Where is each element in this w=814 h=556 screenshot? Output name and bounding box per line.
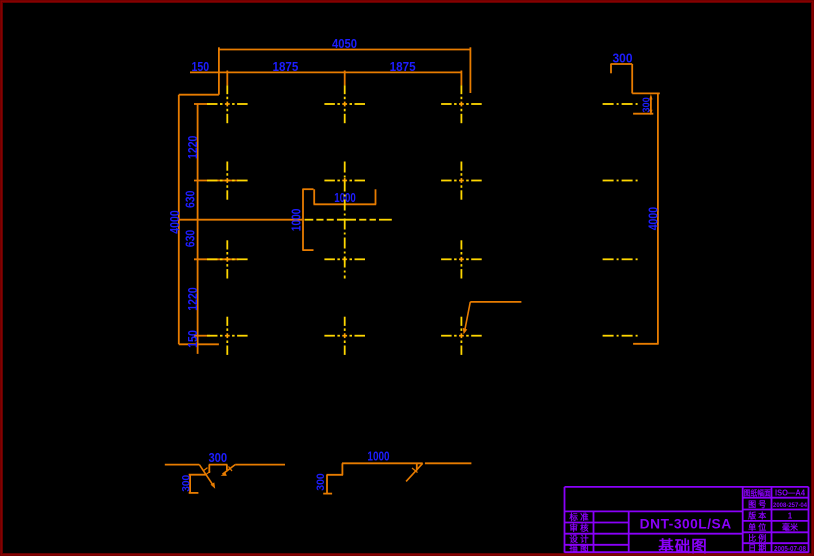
svg-text:630: 630 — [184, 230, 198, 248]
svg-text:1875: 1875 — [273, 60, 299, 74]
svg-text:单 位: 单 位 — [748, 522, 766, 532]
svg-text:1220: 1220 — [186, 136, 200, 159]
svg-text:1220: 1220 — [186, 287, 200, 310]
svg-text:图纸幅面: 图纸幅面 — [744, 487, 771, 497]
svg-text:300: 300 — [315, 473, 327, 491]
svg-text:2008-257-04: 2008-257-04 — [773, 502, 807, 509]
svg-text:毫米: 毫米 — [782, 522, 799, 532]
svg-text:图 号: 图 号 — [748, 500, 766, 509]
svg-text:版 本: 版 本 — [747, 510, 766, 520]
svg-text:DNT-300L/SA: DNT-300L/SA — [640, 516, 732, 531]
svg-text:4000: 4000 — [168, 210, 182, 233]
svg-text:1000: 1000 — [367, 449, 389, 463]
svg-text:描 图: 描 图 — [569, 543, 588, 553]
svg-text:1000: 1000 — [290, 209, 304, 232]
svg-text:150: 150 — [186, 330, 200, 348]
svg-text:基础图: 基础图 — [657, 536, 708, 555]
svg-text:300: 300 — [641, 97, 653, 113]
svg-text:630: 630 — [184, 191, 198, 209]
svg-text:4050: 4050 — [332, 37, 357, 51]
svg-text:1875: 1875 — [390, 60, 416, 74]
svg-text:150: 150 — [191, 60, 209, 74]
svg-text:300: 300 — [180, 475, 192, 492]
svg-text:300: 300 — [208, 451, 227, 465]
svg-text:审 核: 审 核 — [569, 523, 589, 533]
svg-text:ISO—A4: ISO—A4 — [775, 488, 806, 497]
svg-text:2005-07-08: 2005-07-08 — [774, 546, 806, 553]
svg-text:标 准: 标 准 — [568, 512, 589, 522]
svg-text:比 例: 比 例 — [748, 533, 766, 543]
svg-text:4000: 4000 — [646, 207, 660, 230]
svg-text:日 期: 日 期 — [748, 543, 766, 553]
svg-text:1: 1 — [788, 511, 793, 520]
